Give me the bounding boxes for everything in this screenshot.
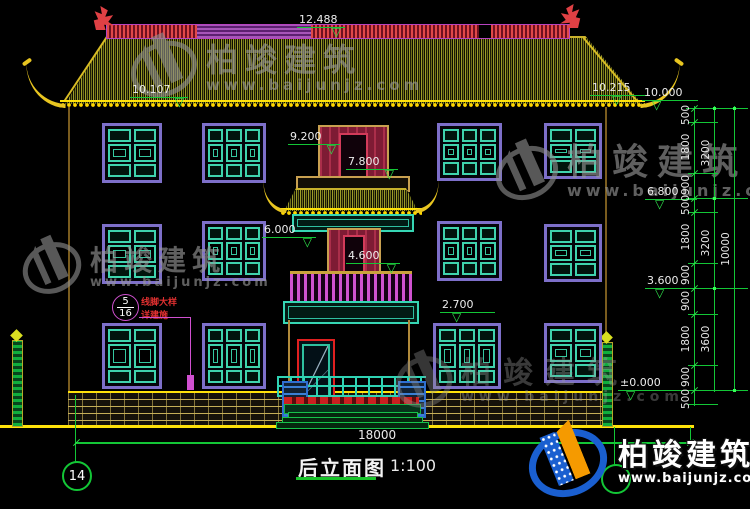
- dim-line-3: [734, 106, 735, 392]
- dim-line-2: [714, 106, 715, 392]
- level-triangle-icon: ▽: [655, 200, 664, 209]
- eave-upturn-left: [22, 58, 71, 108]
- detail-callout-bubble: 5 16: [112, 294, 139, 321]
- level-triangle-icon: ▽: [387, 264, 396, 273]
- window-panel: [575, 230, 597, 276]
- watermark-brand: 柏竣建筑: [567, 145, 750, 181]
- dim-label: 500: [680, 195, 692, 215]
- ridge-segment: [197, 25, 311, 38]
- dim-dot: [733, 389, 736, 392]
- level-triangle-icon: ▽: [612, 96, 621, 105]
- level-triangle-icon: ▽: [626, 391, 635, 400]
- level-triangle-icon: ▽: [175, 98, 184, 107]
- window: [437, 221, 502, 281]
- grid-bubble-14: 14: [62, 461, 92, 491]
- callout-leader-arrow: [187, 375, 194, 390]
- window-panel: [208, 329, 223, 383]
- window: [202, 123, 266, 183]
- window-panel: [108, 129, 131, 177]
- window-panel: [134, 129, 157, 177]
- brand-name: 柏竣建筑: [618, 440, 750, 472]
- dim-label: 900: [680, 367, 692, 387]
- window: [544, 224, 602, 282]
- dim-line-1: [694, 106, 695, 406]
- watermark-brand: 柏竣建筑: [206, 44, 423, 76]
- window-panel: [480, 129, 496, 175]
- window-panel: [245, 129, 260, 177]
- watermark-url: www.baijunjz.com: [461, 389, 684, 405]
- watermark-url: www.baijunjz.com: [206, 76, 423, 94]
- window-panel: [462, 129, 478, 175]
- callout-leader-h: [139, 317, 191, 318]
- level-eave-right: 10.215 ▽: [590, 82, 646, 96]
- level-tower-door-top: 7.800 ▽: [346, 156, 398, 170]
- level-tower-door-mid: 4.600 ▽: [346, 250, 400, 264]
- level-triangle-icon: ▽: [332, 28, 341, 37]
- level-tower-mid: 6.000 ▽: [262, 224, 316, 238]
- brand-logo: 柏竣建筑 www.baijunjz.com: [528, 430, 750, 496]
- watermark-logo-icon: [14, 233, 89, 303]
- bottom-dim-text: 18000: [358, 428, 396, 442]
- ridge-segment: [491, 25, 569, 38]
- dim-label: 1800: [680, 134, 692, 161]
- tower-sign-board: [283, 301, 419, 324]
- window-panel: [245, 329, 260, 383]
- detail-number: 5: [117, 296, 134, 308]
- step-3: [276, 422, 429, 429]
- window-panel: [108, 329, 131, 383]
- dim-dot: [733, 107, 736, 110]
- eave-tile-ends: [60, 100, 645, 109]
- dim-dot: [713, 197, 716, 200]
- level-triangle-icon: ▽: [303, 238, 312, 247]
- window-panel: [550, 230, 572, 276]
- title-underline: [296, 477, 376, 480]
- window-panel: [226, 129, 241, 177]
- watermark-url: www.baijunjz.com: [90, 275, 271, 290]
- drawing-scale: 1:100: [390, 456, 436, 475]
- dim-label: 500: [680, 389, 692, 409]
- dim-label: 1800: [680, 326, 692, 353]
- dim-label: 500: [680, 105, 692, 125]
- level-triangle-icon: ▽: [327, 145, 336, 154]
- level-text: 2.700: [440, 299, 495, 313]
- level-triangle-icon: ▽: [655, 289, 664, 298]
- window-panel: [226, 329, 241, 383]
- window-panel: [462, 227, 478, 275]
- tower-eave-upturn-left: [260, 179, 289, 214]
- dim-label: 10000: [720, 232, 732, 265]
- dim-label: 900: [680, 291, 692, 311]
- window: [102, 123, 162, 183]
- post-left: [12, 340, 23, 427]
- dim-label: 1800: [680, 224, 692, 251]
- level-window-top: 2.700 ▽: [440, 299, 495, 313]
- level-triangle-icon: ▽: [452, 313, 461, 322]
- dim-label: 3200: [700, 140, 712, 167]
- watermark-logo-icon: [387, 347, 460, 416]
- window-panel: [443, 129, 459, 175]
- tower-balustrade: [290, 271, 412, 305]
- window-panel: [134, 329, 157, 383]
- level-triangle-icon: ▽: [385, 170, 394, 179]
- level-triangle-icon: ▽: [652, 101, 661, 110]
- window: [202, 323, 266, 389]
- brand-logo-icon: [519, 417, 618, 508]
- grid-line-left: [75, 395, 76, 462]
- window-panel: [208, 129, 223, 177]
- cad-canvas: { "drawing": { "title": "后立面图", "scale":…: [0, 0, 750, 494]
- callout-text-1: 线脚大样: [141, 295, 177, 308]
- level-tower-top: 9.200 ▽: [288, 131, 340, 145]
- grid-bubble-label: 14: [69, 469, 86, 484]
- level-text: 10.000: [642, 87, 698, 101]
- dim-dot: [713, 287, 716, 290]
- ridge-gap: [479, 25, 491, 38]
- window: [437, 123, 502, 181]
- tower-eave-upturn-right: [412, 179, 441, 214]
- watermark-brand: 柏竣建筑: [90, 247, 271, 275]
- level-roof-right: 10.000 ▽: [642, 87, 698, 101]
- window-panel: [480, 227, 496, 275]
- dim-label: 3200: [700, 230, 712, 257]
- window-panel: [443, 227, 459, 275]
- dim-label: 3600: [700, 326, 712, 353]
- dim-label: 900: [680, 265, 692, 285]
- detail-sheet: 16: [119, 308, 132, 319]
- dim-connector: [688, 404, 718, 405]
- level-eave-left: 10.107 ▽: [130, 84, 188, 98]
- level-ridge: 12.488 ▽: [297, 14, 345, 28]
- watermark-left: 柏竣建筑 www.baijunjz.com: [22, 243, 271, 293]
- brand-url: www.baijunjz.com: [618, 471, 750, 486]
- callout-text-2: 详建施: [141, 308, 168, 321]
- dim-label: 900: [680, 175, 692, 195]
- watermark-logo-icon: [487, 136, 567, 210]
- window: [102, 323, 162, 389]
- dim-dot: [713, 107, 716, 110]
